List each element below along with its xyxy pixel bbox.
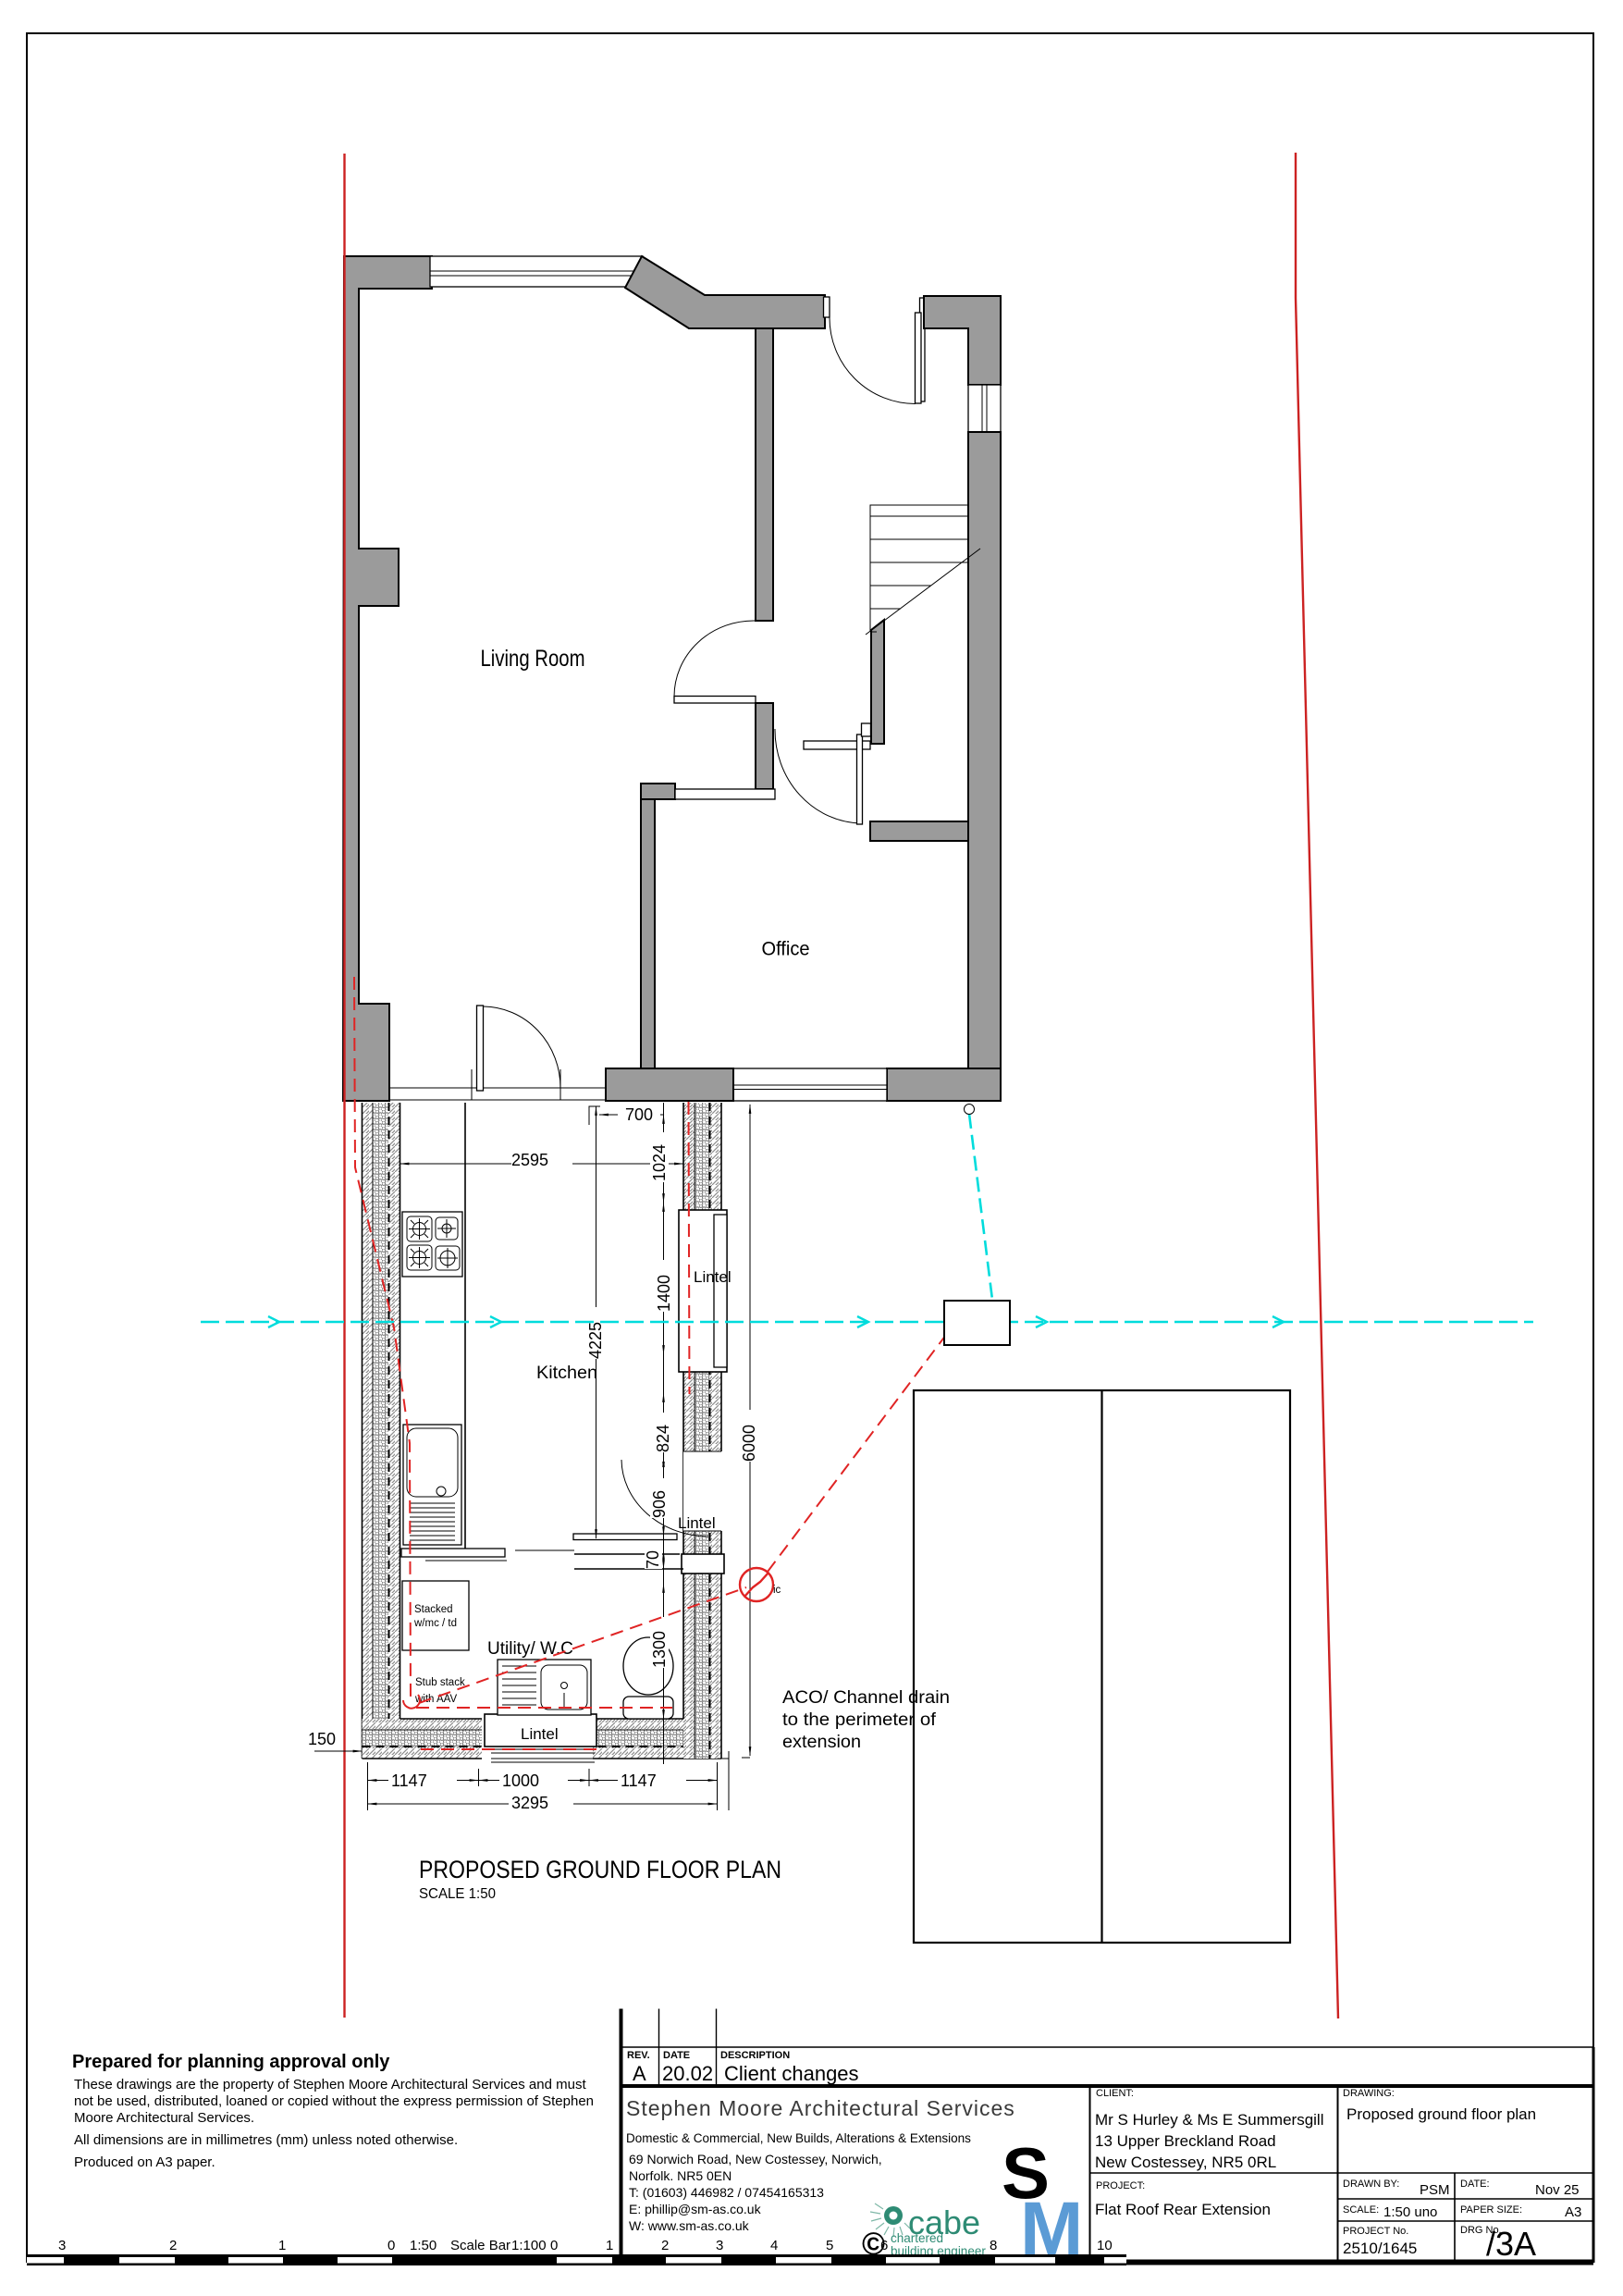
svg-text:0: 0 <box>387 2238 395 2253</box>
svg-text:3295: 3295 <box>511 1794 548 1812</box>
svg-text:SCALE:: SCALE: <box>1343 2204 1379 2216</box>
svg-text:SCALE 1:50: SCALE 1:50 <box>419 1886 496 1902</box>
svg-text:Kitchen: Kitchen <box>536 1364 597 1383</box>
svg-text:700: 700 <box>625 1105 653 1124</box>
svg-text:Stephen Moore Architectural Se: Stephen Moore Architectural Services <box>626 2096 1015 2120</box>
svg-text:Client changes: Client changes <box>724 2062 859 2085</box>
svg-text:Norfolk. NR5 0EN: Norfolk. NR5 0EN <box>629 2168 732 2183</box>
svg-text:1:50: 1:50 <box>410 2238 436 2253</box>
svg-text:Flat Roof Rear Extension: Flat Roof Rear Extension <box>1095 2201 1271 2218</box>
svg-text:Office: Office <box>762 939 810 960</box>
svg-text:PAPER SIZE:: PAPER SIZE: <box>1460 2204 1522 2216</box>
svg-text:1147: 1147 <box>621 1771 657 1790</box>
svg-text:ic: ic <box>773 1585 781 1596</box>
svg-text:1300: 1300 <box>650 1631 669 1668</box>
svg-text:PSM: PSM <box>1420 2182 1450 2198</box>
svg-text:W: www.sm-as.co.uk: W: www.sm-as.co.uk <box>629 2218 750 2233</box>
svg-text:1:100: 1:100 <box>511 2238 547 2253</box>
svg-text:Living Room: Living Room <box>481 646 585 672</box>
svg-text:70: 70 <box>644 1550 662 1569</box>
svg-text:DATE: DATE <box>663 2050 690 2061</box>
svg-text:69 Norwich Road, New Costessey: 69 Norwich Road, New Costessey, Norwich, <box>629 2152 882 2166</box>
svg-text:906: 906 <box>650 1490 669 1518</box>
svg-text:20.02: 20.02 <box>662 2062 713 2085</box>
svg-text:Domestic & Commercial, New Bui: Domestic & Commercial, New Builds, Alter… <box>626 2131 971 2145</box>
svg-text:/3A: /3A <box>1486 2225 1536 2263</box>
svg-text:Lintel: Lintel <box>678 1514 716 1532</box>
svg-text:Lintel: Lintel <box>694 1268 732 1286</box>
svg-text:1400: 1400 <box>655 1275 673 1312</box>
svg-text:1000: 1000 <box>502 1771 539 1790</box>
svg-text:0: 0 <box>550 2238 558 2253</box>
svg-text:Stacked: Stacked <box>414 1604 453 1615</box>
svg-text:10: 10 <box>1097 2238 1113 2253</box>
svg-text:Produced on A3 paper.: Produced on A3 paper. <box>74 2154 215 2170</box>
svg-text:1024: 1024 <box>650 1144 669 1181</box>
svg-text:Utility/ W.C: Utility/ W.C <box>487 1639 573 1659</box>
svg-text:Stub stack: Stub stack <box>415 1677 465 1688</box>
svg-text:Moore Architectural Services.: Moore Architectural Services. <box>74 2110 254 2126</box>
svg-text:13 Upper Breckland Road: 13 Upper Breckland Road <box>1095 2132 1276 2150</box>
svg-text:extension: extension <box>782 1733 861 1752</box>
svg-text:E: phillip@sm-as.co.uk: E: phillip@sm-as.co.uk <box>629 2202 762 2216</box>
svg-text:These drawings are the propert: These drawings are the property of Steph… <box>74 2077 586 2092</box>
svg-text:5: 5 <box>826 2238 833 2253</box>
svg-text:150: 150 <box>308 1730 336 1748</box>
svg-text:REV.: REV. <box>627 2050 650 2061</box>
svg-text:CLIENT:: CLIENT: <box>1096 2088 1134 2099</box>
svg-text:ACO/ Channel drain: ACO/ Channel drain <box>782 1688 950 1708</box>
svg-text:PROJECT:: PROJECT: <box>1096 2180 1145 2191</box>
svg-text:1:50 uno: 1:50 uno <box>1383 2204 1437 2220</box>
svg-text:824: 824 <box>654 1425 672 1452</box>
svg-text:1: 1 <box>278 2238 286 2253</box>
svg-text:Prepared for planning approval: Prepared for planning approval only <box>72 2052 390 2072</box>
svg-text:PROPOSED GROUND FLOOR PLAN: PROPOSED GROUND FLOOR PLAN <box>419 1856 781 1883</box>
svg-text:T: (01603) 446982 / 074541653: T: (01603) 446982 / 07454165313 <box>629 2185 824 2200</box>
svg-text:PROJECT No.: PROJECT No. <box>1343 2226 1408 2237</box>
svg-text:New Costessey, NR5 0RL: New Costessey, NR5 0RL <box>1095 2154 1276 2171</box>
svg-text:Scale Bar: Scale Bar <box>450 2238 510 2253</box>
svg-text:DESCRIPTION: DESCRIPTION <box>720 2050 790 2061</box>
svg-text:A3: A3 <box>1565 2204 1581 2220</box>
svg-text:chartered: chartered <box>891 2231 943 2245</box>
svg-text:3: 3 <box>716 2238 723 2253</box>
svg-text:All dimensions are in millimet: All dimensions are in millimetres (mm) u… <box>74 2132 458 2148</box>
svg-text:not be used, distributed, loan: not be used, distributed, loaned or copi… <box>74 2093 594 2109</box>
svg-text:2: 2 <box>169 2238 177 2253</box>
svg-text:Proposed ground floor plan: Proposed ground floor plan <box>1346 2105 1536 2123</box>
svg-text:4225: 4225 <box>586 1322 605 1359</box>
svg-text:1147: 1147 <box>391 1771 427 1790</box>
svg-text:2: 2 <box>661 2238 669 2253</box>
svg-text:3: 3 <box>58 2238 66 2253</box>
svg-text:Nov 25: Nov 25 <box>1535 2182 1580 2198</box>
svg-text:6: 6 <box>880 2238 888 2253</box>
svg-text:1: 1 <box>606 2238 613 2253</box>
svg-text:2595: 2595 <box>511 1151 548 1169</box>
svg-text:w/mc / td: w/mc / td <box>413 1618 457 1629</box>
svg-text:8: 8 <box>990 2238 997 2253</box>
svg-text:Lintel: Lintel <box>521 1725 559 1743</box>
svg-text:DRAWING:: DRAWING: <box>1343 2088 1395 2099</box>
svg-text:DATE:: DATE: <box>1460 2179 1490 2190</box>
svg-text:2510/1645: 2510/1645 <box>1343 2240 1417 2257</box>
svg-text:4: 4 <box>770 2238 778 2253</box>
svg-text:DRAWN BY:: DRAWN BY: <box>1343 2179 1399 2190</box>
svg-text:A: A <box>633 2062 646 2085</box>
svg-text:Mr S Hurley & Ms E Summersgill: Mr S Hurley & Ms E Summersgill <box>1095 2111 1323 2129</box>
svg-text:6000: 6000 <box>740 1425 758 1462</box>
